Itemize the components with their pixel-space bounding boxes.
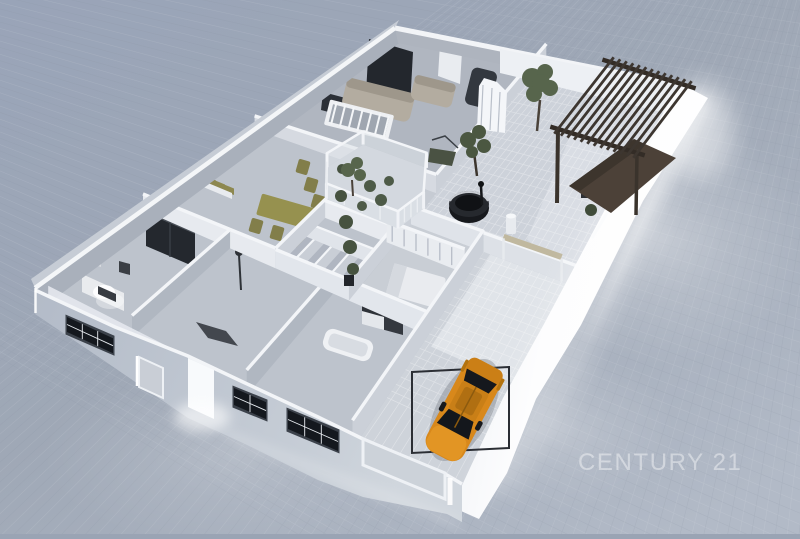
svg-text:CENTURY 21: CENTURY 21 bbox=[578, 449, 743, 476]
